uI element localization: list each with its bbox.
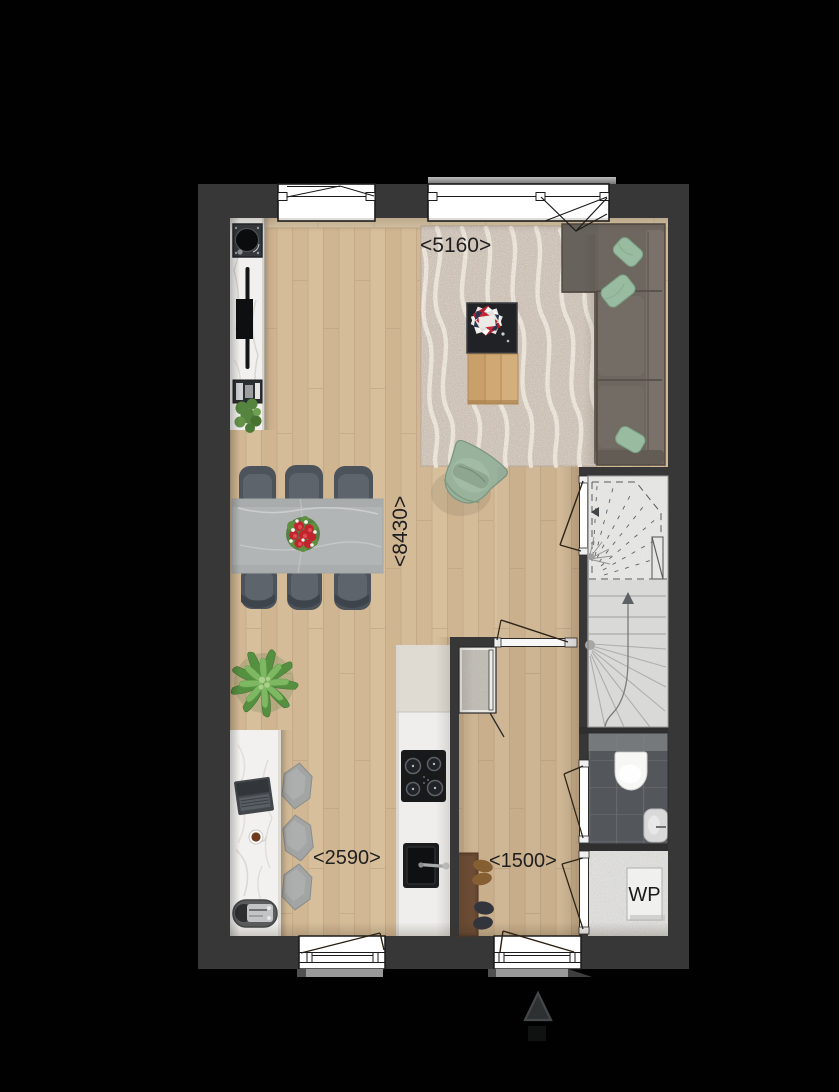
svg-text:WP: WP bbox=[628, 884, 660, 906]
svg-text:<2590>: <2590> bbox=[313, 847, 381, 869]
svg-text:<5160>: <5160> bbox=[420, 234, 491, 257]
svg-text:<1500>: <1500> bbox=[489, 850, 557, 872]
svg-text:<8430>: <8430> bbox=[389, 496, 412, 567]
